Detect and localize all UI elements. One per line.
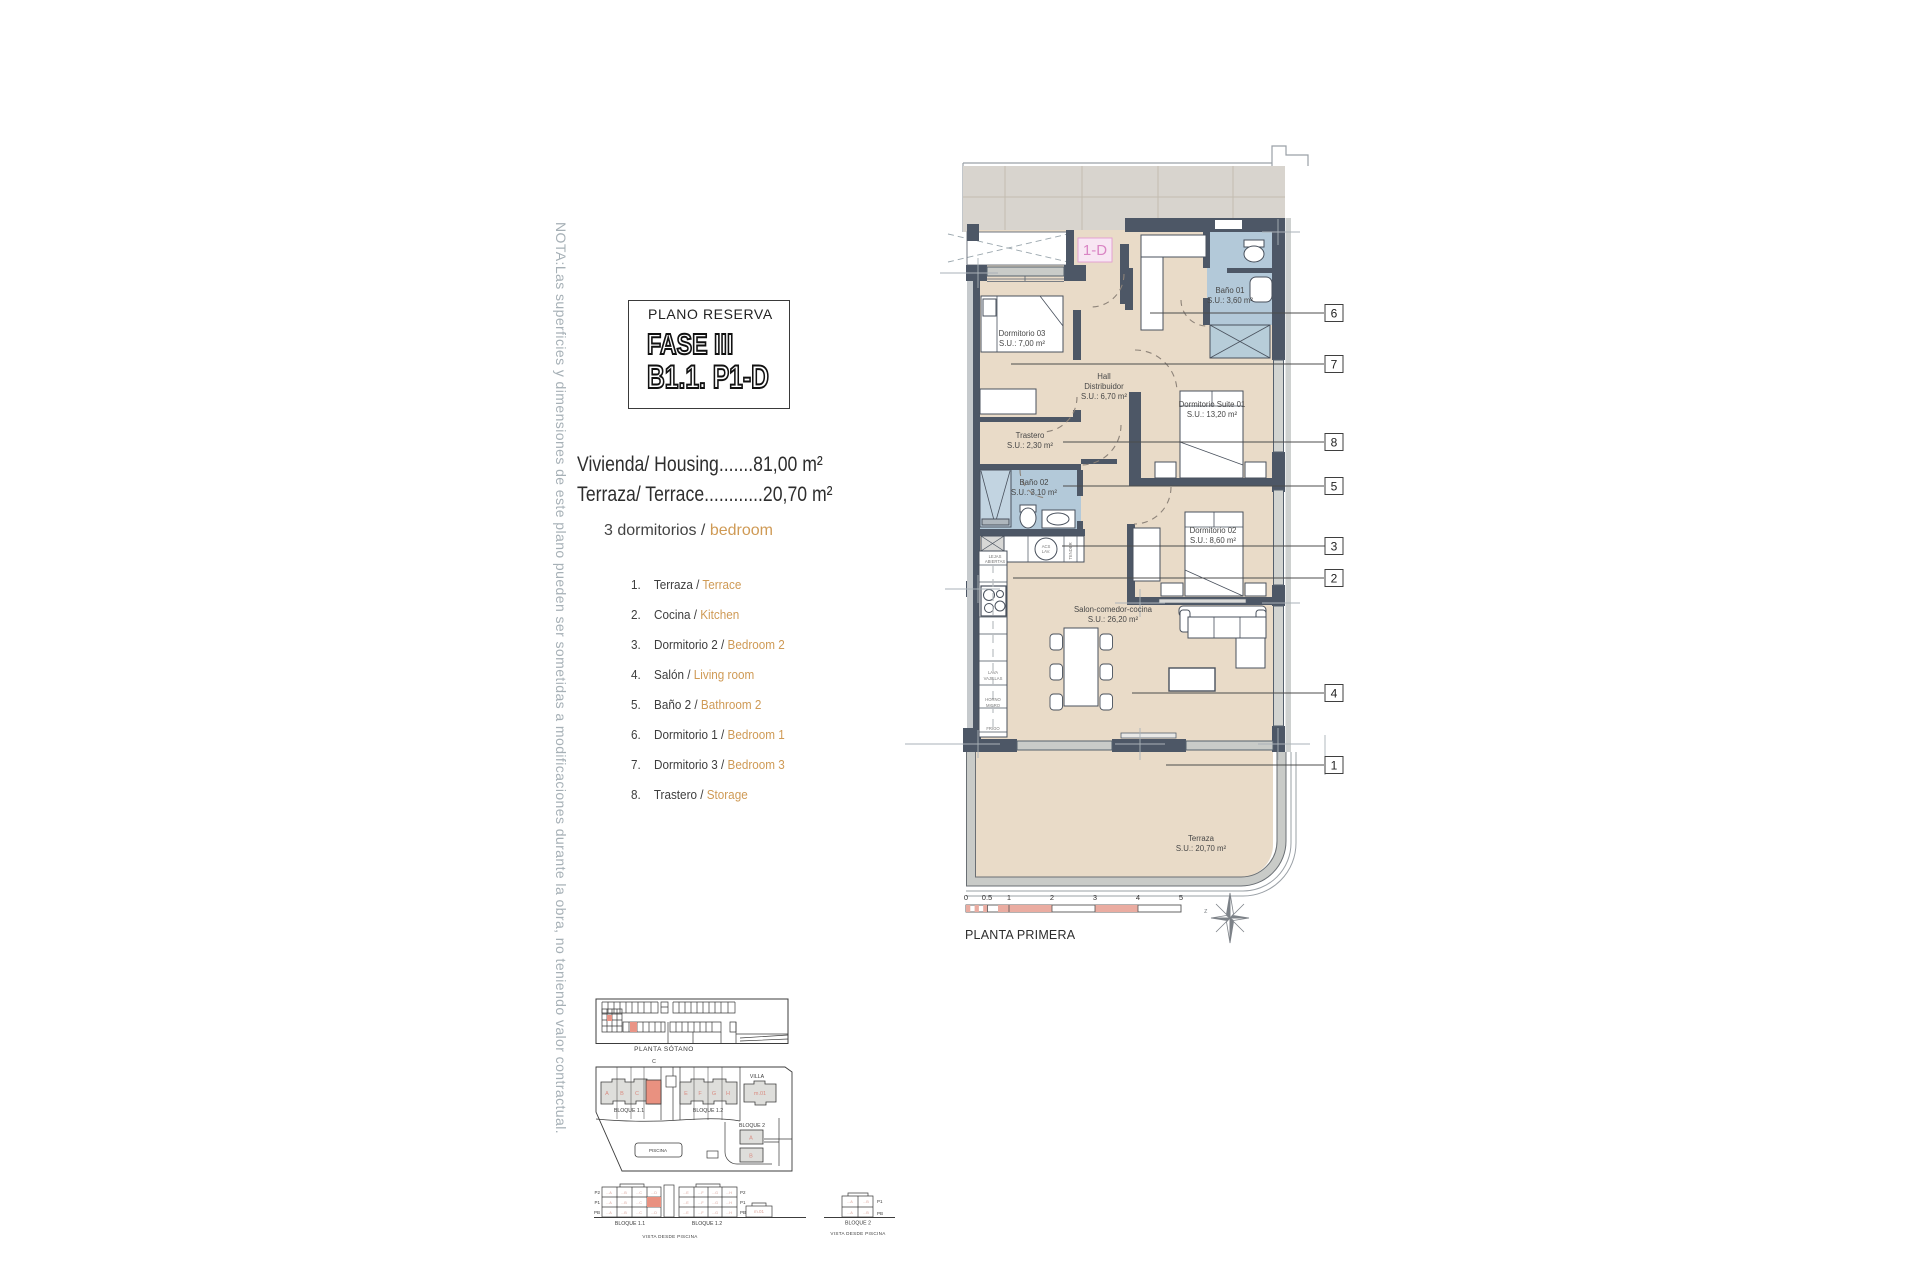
svg-text:8: 8 <box>1331 436 1338 450</box>
svg-text:...D: ...D <box>651 1191 657 1195</box>
svg-text:P1: P1 <box>594 1200 600 1205</box>
svg-text:...H: ...H <box>726 1211 732 1215</box>
svg-text:2: 2 <box>1331 572 1338 586</box>
svg-text:BLOQUE 1.1: BLOQUE 1.1 <box>615 1221 645 1227</box>
svg-text:3: 3 <box>1331 540 1338 554</box>
svg-text:Dormitorio 03: Dormitorio 03 <box>999 329 1046 338</box>
svg-text:S.U.: 20,70 m²: S.U.: 20,70 m² <box>1176 844 1227 853</box>
svg-text:VAJILLAS: VAJILLAS <box>984 676 1003 681</box>
svg-text:Dormitorio 02: Dormitorio 02 <box>1190 526 1237 535</box>
svg-text:...E: ...E <box>683 1201 689 1205</box>
svg-text:PB: PB <box>740 1210 746 1215</box>
svg-text:...B: ...B <box>863 1200 869 1204</box>
svg-text:...F: ...F <box>698 1201 704 1205</box>
svg-text:...A: ...A <box>606 1211 612 1215</box>
svg-text:...G: ...G <box>712 1201 718 1205</box>
svg-text:BLOQUE 1.2: BLOQUE 1.2 <box>692 1221 722 1227</box>
svg-text:S.U.: 26,20 m²: S.U.: 26,20 m² <box>1088 615 1139 624</box>
svg-text:...F: ...F <box>698 1191 704 1195</box>
svg-text:A: A <box>605 1091 609 1097</box>
svg-text:HORNO: HORNO <box>985 697 1001 702</box>
svg-text:P2: P2 <box>740 1190 746 1195</box>
svg-text:H: H <box>726 1091 730 1097</box>
svg-text:...B: ...B <box>621 1201 627 1205</box>
svg-text:...B: ...B <box>621 1191 627 1195</box>
svg-text:1-D: 1-D <box>1083 242 1107 259</box>
svg-text:0: 0 <box>964 893 968 902</box>
svg-text:...A: ...A <box>606 1201 612 1205</box>
svg-text:...C: ...C <box>636 1211 642 1215</box>
svg-text:BLOQUE 1.2: BLOQUE 1.2 <box>693 1108 723 1114</box>
svg-text:S.U.: 6,70 m²: S.U.: 6,70 m² <box>1081 392 1127 401</box>
svg-text:m.01: m.01 <box>754 1091 766 1097</box>
svg-text:FRIGO: FRIGO <box>986 726 1000 731</box>
svg-text:...C: ...C <box>636 1201 642 1205</box>
svg-text:MICRO: MICRO <box>986 703 1001 708</box>
svg-text:P1: P1 <box>877 1199 883 1204</box>
svg-text:BLOQUE 2: BLOQUE 2 <box>845 1221 871 1227</box>
svg-text:Terraza: Terraza <box>1188 834 1215 843</box>
svg-text:...B: ...B <box>863 1211 869 1215</box>
svg-text:ABIERTAS: ABIERTAS <box>985 559 1006 564</box>
svg-text:VISTA DESDE PISCINA: VISTA DESDE PISCINA <box>830 1231 886 1236</box>
svg-text:PLANTA SÓTANO: PLANTA SÓTANO <box>634 1044 694 1053</box>
svg-text:6: 6 <box>1331 307 1338 321</box>
svg-text:...D: ...D <box>651 1211 657 1215</box>
svg-text:LAVA: LAVA <box>988 670 998 675</box>
svg-text:...H: ...H <box>726 1201 732 1205</box>
svg-text:4: 4 <box>1136 893 1140 902</box>
svg-text:Trastero: Trastero <box>1016 431 1045 440</box>
svg-text:...A: ...A <box>847 1211 853 1215</box>
svg-text:...C: ...C <box>636 1191 642 1195</box>
svg-text:...F: ...F <box>698 1211 704 1215</box>
svg-text:...G: ...G <box>712 1211 718 1215</box>
svg-text:...G: ...G <box>712 1191 718 1195</box>
svg-text:1: 1 <box>1007 893 1011 902</box>
svg-text:C: C <box>635 1091 639 1097</box>
svg-text:7: 7 <box>1331 358 1338 372</box>
svg-text:...A: ...A <box>847 1200 853 1204</box>
svg-text:PB: PB <box>594 1210 600 1215</box>
svg-text:5: 5 <box>1331 480 1338 494</box>
svg-text:Baño 01: Baño 01 <box>1215 286 1244 295</box>
svg-text:...H: ...H <box>726 1191 732 1195</box>
svg-text:G: G <box>712 1091 716 1097</box>
svg-text:5: 5 <box>1179 893 1183 902</box>
svg-text:B: B <box>749 1154 753 1160</box>
svg-text:BLOQUE 2: BLOQUE 2 <box>739 1123 765 1129</box>
svg-text:B: B <box>620 1091 624 1097</box>
svg-text:...E: ...E <box>683 1211 689 1215</box>
svg-text:S.U.: 8,60 m²: S.U.: 8,60 m² <box>1190 536 1236 545</box>
svg-text:PB: PB <box>877 1211 883 1216</box>
svg-text:S.U.: 3,60 m²: S.U.: 3,60 m² <box>1207 296 1253 305</box>
svg-text:Dormitorio Suite 01: Dormitorio Suite 01 <box>1179 400 1246 409</box>
svg-text:S.U.: 13,20 m²: S.U.: 13,20 m² <box>1187 410 1238 419</box>
svg-text:S.U.: 2,30 m²: S.U.: 2,30 m² <box>1007 441 1053 450</box>
svg-text:S.U.: 3,10 m²: S.U.: 3,10 m² <box>1011 488 1057 497</box>
svg-text:z: z <box>1204 908 1208 915</box>
svg-text:P2: P2 <box>594 1190 600 1195</box>
svg-text:C: C <box>652 1059 656 1065</box>
svg-text:3: 3 <box>1093 893 1097 902</box>
svg-text:...B: ...B <box>621 1211 627 1215</box>
svg-text:Baño 02: Baño 02 <box>1019 478 1048 487</box>
svg-text:VISTA DESDE PISCINA: VISTA DESDE PISCINA <box>642 1234 698 1239</box>
svg-text:...E: ...E <box>683 1191 689 1195</box>
svg-text:PLANTA PRIMERA: PLANTA PRIMERA <box>965 928 1076 942</box>
svg-text:Distribuidor: Distribuidor <box>1084 382 1124 391</box>
svg-text:4: 4 <box>1331 687 1338 701</box>
svg-text:1: 1 <box>1331 759 1338 773</box>
svg-text:BLOQUE 1.1: BLOQUE 1.1 <box>614 1108 644 1114</box>
svg-text:PISCINA: PISCINA <box>649 1148 667 1153</box>
svg-text:...A: ...A <box>606 1191 612 1195</box>
svg-text:LAV.: LAV. <box>1042 549 1050 554</box>
svg-text:m.01: m.01 <box>754 1209 765 1214</box>
svg-text:VILLA: VILLA <box>750 1074 765 1080</box>
svg-text:Hall: Hall <box>1097 372 1111 381</box>
svg-text:S.U.: 7,00 m²: S.U.: 7,00 m² <box>999 339 1045 348</box>
svg-text:Salon-comedor-cocina: Salon-comedor-cocina <box>1074 605 1153 614</box>
svg-text:E: E <box>684 1091 688 1097</box>
svg-text:TENDER: TENDER <box>1068 542 1073 559</box>
svg-text:A: A <box>749 1136 753 1142</box>
svg-text:P1: P1 <box>740 1200 746 1205</box>
svg-text:0.5: 0.5 <box>982 893 992 902</box>
svg-text:2: 2 <box>1050 893 1054 902</box>
